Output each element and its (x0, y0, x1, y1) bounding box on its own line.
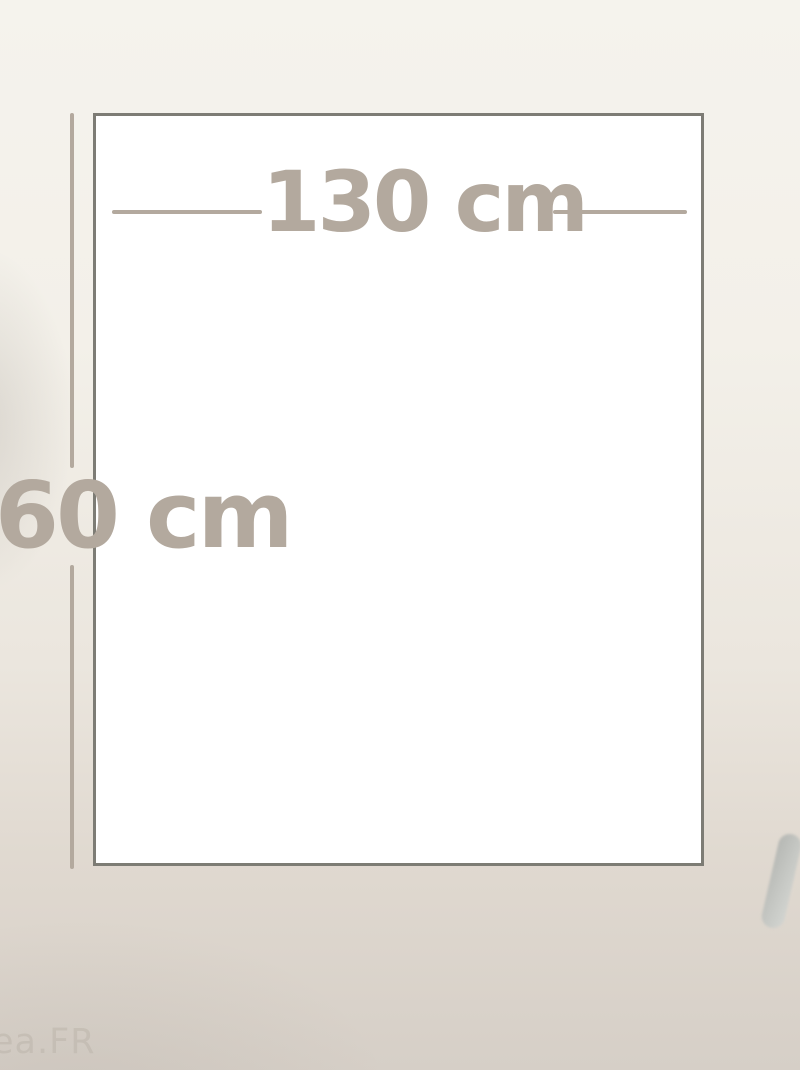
width-dimension-label: 130 cm (262, 160, 553, 244)
blurred-object-fragment (759, 832, 800, 931)
product-dimension-diagram: 130 cm 60 cm ea.FR (0, 0, 800, 1070)
width-dimension-line-left (112, 210, 262, 214)
height-dimension-line-bottom (70, 565, 74, 869)
watermark-text: ea.FR (0, 1022, 96, 1062)
height-dimension-label: 60 cm (0, 470, 290, 562)
height-dimension-line-top (70, 113, 74, 468)
